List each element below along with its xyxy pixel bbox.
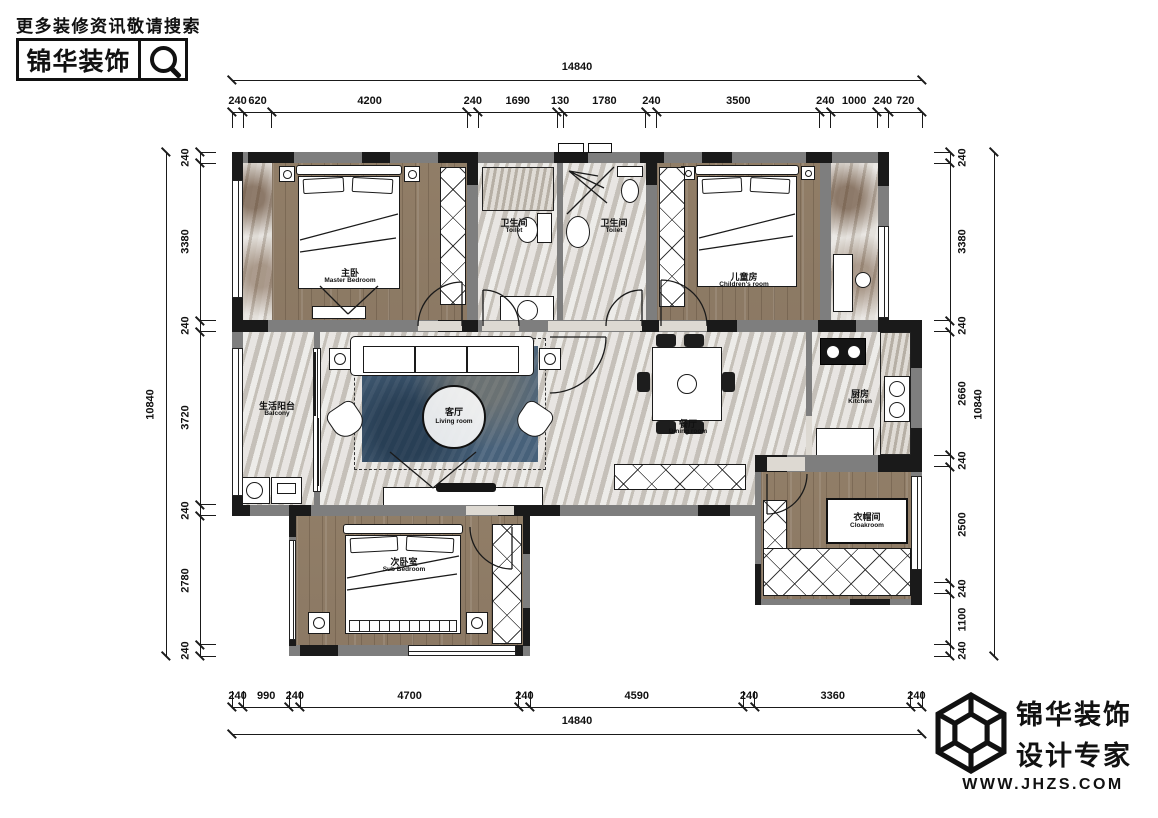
- dim-right-seg-0: 240: [957, 128, 970, 188]
- dim-right-total-line: [994, 152, 995, 656]
- door-opening-6: [466, 506, 514, 515]
- wall-black-18: [889, 320, 922, 332]
- dim-right-seg-8: 240: [957, 620, 970, 680]
- wall-black-8: [878, 152, 889, 186]
- window-1: [232, 180, 243, 298]
- dim-right-ext-end: [934, 656, 950, 657]
- dim-top-seg-8: 3500: [708, 95, 768, 108]
- wall-black-3: [438, 152, 478, 163]
- sub-wardrobe: [492, 524, 522, 644]
- window-4: [878, 226, 889, 318]
- wall-black-32: [755, 564, 761, 605]
- balcony-washer-drum: [246, 482, 263, 499]
- wall-black-37: [646, 163, 657, 185]
- wall-black-16: [707, 320, 737, 332]
- dim-right-line: [950, 152, 951, 656]
- room-label-toilet1: 卫生间Toilet: [500, 219, 527, 235]
- wall-black-24: [289, 505, 296, 537]
- room-label-dining: 餐厅Dining room: [669, 420, 707, 436]
- sub-bed: [343, 524, 463, 636]
- toilet2-wc-bowl: [621, 179, 639, 203]
- master-dresser: [312, 306, 366, 319]
- children-nightstand-right: [801, 166, 815, 180]
- kitchen-stove: [820, 338, 866, 365]
- wall-14: [755, 599, 922, 605]
- dim-top-ext-2: [271, 112, 272, 128]
- wall-black-31: [878, 455, 922, 472]
- wall-black-26: [523, 516, 530, 554]
- dim-left-seg-2: 240: [180, 296, 193, 356]
- toilet1-wc-tank: [537, 213, 552, 243]
- door-opening-7: [767, 457, 805, 471]
- footer-logo: 锦华装饰 设计专家 WWW.JHZS.COM: [934, 692, 1152, 804]
- door-opening-1: [418, 321, 462, 331]
- dining-chair-2: [684, 334, 704, 347]
- room-label-kitchen: 厨房Kitchen: [848, 390, 872, 406]
- children-wardrobe: [659, 167, 685, 307]
- dim-top-ext-6: [563, 112, 564, 128]
- window-sub-bottom: [408, 645, 516, 656]
- dim-top-ext-9: [819, 112, 820, 128]
- dining-chair-5: [637, 372, 650, 392]
- room-label-toilet2: 卫生间Toilet: [600, 219, 627, 235]
- wall-17: [557, 163, 563, 320]
- children-bed: [695, 165, 799, 289]
- door-opening-8: [806, 416, 812, 455]
- dim-right-ext-1: [934, 163, 950, 164]
- dim-bottom-seg-6: 240: [719, 690, 779, 703]
- dim-top-seg-7: 240: [621, 95, 681, 108]
- flue-stub-1: [558, 143, 584, 153]
- dining-chair-1: [656, 334, 676, 347]
- dim-left-seg-1: 3380: [180, 212, 193, 272]
- footer-website: WWW.JHZS.COM: [934, 776, 1152, 794]
- dim-top-ext-0: [232, 112, 233, 128]
- floorplan-page: 更多装修资讯敬请搜索 锦华装饰 主卧Master Bedroom卫生间Toile…: [0, 0, 1158, 818]
- dim-right-seg-1: 3380: [957, 212, 970, 272]
- window-3: [289, 540, 296, 640]
- living-sofa: [350, 336, 534, 376]
- door-opening-5: [548, 321, 606, 331]
- dining-chair-6: [722, 372, 735, 392]
- dim-right-seg-5: 2500: [957, 494, 970, 554]
- sofa-lamp-left: [334, 353, 346, 365]
- wall-black-7: [806, 152, 832, 163]
- dim-left-ext-5: [200, 515, 216, 516]
- wall-black-2: [362, 152, 390, 163]
- children-desk-chair: [855, 272, 871, 288]
- wall-19: [820, 163, 831, 320]
- children-desk: [833, 254, 853, 312]
- dim-top-seg-2: 4200: [340, 95, 400, 108]
- wall-black-13: [232, 320, 268, 332]
- toilet1-sink: [517, 300, 538, 321]
- sub-nightstand-right: [466, 612, 488, 634]
- dim-bottom-total-line: [232, 734, 922, 735]
- dim-left-seg-6: 240: [180, 620, 193, 680]
- wall-black-33: [850, 599, 890, 605]
- dim-top-seg-12: 720: [875, 95, 935, 108]
- dim-top-seg-1: 620: [228, 95, 288, 108]
- toilet1-tub: [482, 167, 554, 211]
- cloak-closet-bottom: [763, 548, 911, 596]
- wall-black-4: [554, 152, 588, 163]
- wall-black-15: [640, 320, 659, 332]
- window-2: [232, 348, 243, 496]
- window-5: [911, 476, 922, 570]
- wall-black-34: [530, 505, 560, 516]
- wall-black-36: [467, 163, 478, 185]
- dim-left-seg-3: 3720: [180, 388, 193, 448]
- dining-centerpiece: [677, 374, 697, 394]
- dim-bottom-line: [232, 707, 922, 708]
- dim-bottom-seg-8: 240: [886, 690, 946, 703]
- room-label-balcony: 生活阳台Balcony: [259, 402, 295, 418]
- wall-black-1: [248, 152, 294, 163]
- dim-right-ext-0: [934, 152, 950, 153]
- dim-top-ext-5: [557, 112, 558, 128]
- wall-black-28: [300, 645, 338, 656]
- room-label-children: 儿童房Children's room: [719, 273, 769, 289]
- dim-left-ext-2: [200, 320, 216, 321]
- wall-18: [646, 163, 657, 320]
- dim-bottom-seg-7: 3360: [803, 690, 863, 703]
- wall-black-27: [523, 608, 530, 646]
- dim-left-total-line: [166, 152, 167, 656]
- wall-black-38: [232, 505, 250, 516]
- dim-left-seg-4: 240: [180, 480, 193, 540]
- dim-left-ext-3: [200, 331, 216, 332]
- dim-top-ext-8: [656, 112, 657, 128]
- dim-bottom-total: 14840: [547, 715, 607, 728]
- kitchen-sink-basin-2: [889, 402, 905, 418]
- dim-left-ext-4: [200, 504, 216, 505]
- slider-panel-2: [317, 418, 319, 486]
- footer-brand-1: 锦华装饰: [1016, 693, 1132, 732]
- dim-top-ext-12: [888, 112, 889, 128]
- master-nightstand-right: [404, 166, 420, 182]
- wall-black-6: [702, 152, 732, 163]
- footer-brand-2: 设计专家: [1016, 734, 1132, 773]
- balcony-basin: [277, 483, 296, 494]
- sofa-lamp-right: [544, 353, 556, 365]
- cube-logo-icon: [934, 692, 1008, 774]
- dim-top-ext-end: [922, 112, 923, 128]
- dining-cabinet: [614, 464, 746, 490]
- sub-nightstand-left: [308, 612, 330, 634]
- dim-left-line: [200, 152, 201, 656]
- door-opening-2: [482, 321, 519, 331]
- door-opening-4: [659, 321, 707, 331]
- dim-left-seg-5: 2780: [180, 550, 193, 610]
- wall-black-21: [911, 568, 922, 605]
- slider-panel-1: [314, 352, 316, 416]
- flue-stub-2: [588, 143, 612, 153]
- dim-top-ext-7: [645, 112, 646, 128]
- toilet2-sink: [566, 216, 590, 248]
- toilet2-wc-tank: [617, 166, 643, 177]
- wall-black-19: [911, 332, 922, 368]
- tv-screen: [436, 483, 496, 492]
- kitchen-sink-basin-1: [889, 381, 905, 397]
- dim-right-ext-4: [934, 455, 950, 456]
- dim-bottom-seg-2: 240: [265, 690, 325, 703]
- dim-bottom-seg-5: 4590: [607, 690, 667, 703]
- room-label-master: 主卧Master Bedroom: [324, 269, 375, 285]
- dim-right-seg-2: 240: [957, 296, 970, 356]
- dim-right-seg-4: 240: [957, 431, 970, 491]
- wall-black-35: [698, 505, 730, 516]
- dim-top-total-line: [232, 80, 922, 81]
- dim-left-seg-0: 240: [180, 128, 193, 188]
- dim-top-total: 14840: [547, 61, 607, 74]
- master-bay-floor: [243, 163, 272, 320]
- dim-bottom-seg-3: 4700: [380, 690, 440, 703]
- master-wardrobe: [440, 167, 466, 305]
- dim-right-total: 10840: [973, 374, 986, 434]
- wall-16: [467, 163, 478, 320]
- room-label-sub_bedroom: 次卧室Sub Bedroom: [383, 558, 426, 574]
- wall-black-10: [232, 152, 243, 182]
- door-opening-3: [605, 321, 642, 331]
- dim-top-ext-10: [830, 112, 831, 128]
- dim-left-total: 10840: [145, 374, 158, 434]
- cloakroom-label: 衣帽间Cloakroom: [826, 498, 908, 544]
- dim-bottom-seg-4: 240: [494, 690, 554, 703]
- master-nightstand-left: [279, 166, 295, 182]
- wall-black-5: [640, 152, 664, 163]
- wall-black-17: [818, 320, 856, 332]
- dim-right-seg-3: 2660: [957, 363, 970, 423]
- living-room-label: 客厅Living room: [422, 385, 486, 449]
